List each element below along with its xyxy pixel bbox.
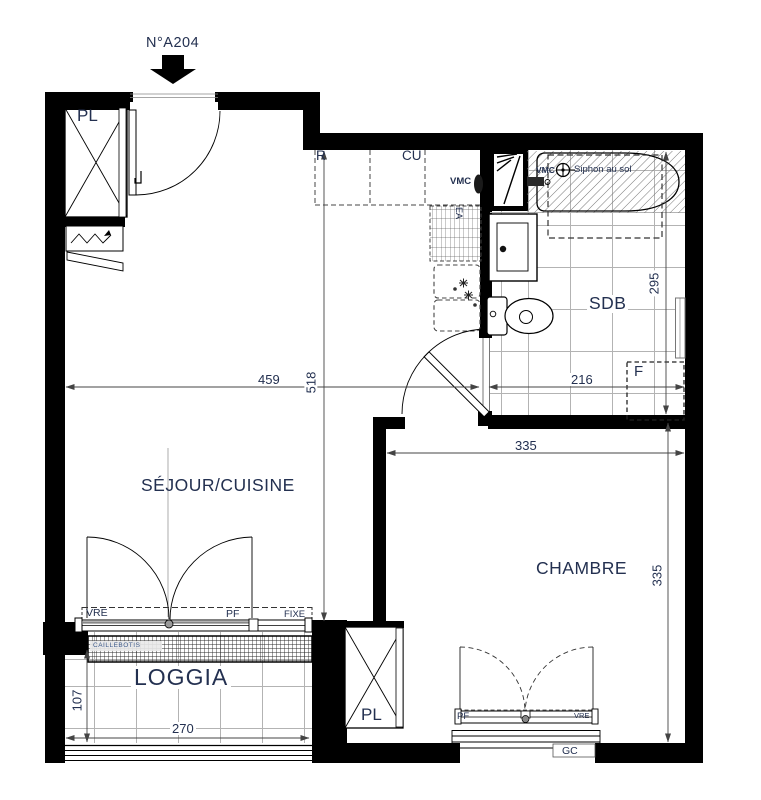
window-f-label: F — [634, 364, 643, 379]
entrance-arrow-icon — [150, 55, 196, 84]
toilet — [487, 297, 553, 335]
bathroom-door — [402, 329, 490, 417]
room-label-sdb: SDB — [587, 295, 628, 313]
siphon-label: Siphon au sol — [574, 165, 632, 175]
dim-loggia-width: 270 — [170, 722, 196, 735]
dim-chambre-width: 335 — [513, 439, 539, 452]
pf-chambre-label: PF — [457, 712, 469, 722]
vanity-unit — [489, 214, 537, 281]
vmc-vent-icon — [474, 175, 483, 194]
dim-sdb-length: 295 — [647, 271, 660, 297]
vre-chambre-label: VRE — [574, 712, 589, 720]
room-label-chambre: CHAMBRE — [536, 560, 627, 578]
entry-closet — [65, 108, 127, 271]
towel-radiator — [676, 298, 686, 358]
entry-door — [129, 94, 220, 195]
kitchen-sink — [434, 265, 480, 331]
faucet-icon — [459, 279, 473, 300]
fridge-label: R — [316, 149, 326, 163]
closet-label-chambre: PL — [360, 706, 383, 723]
grating-label: CAILLEBOTIS — [93, 643, 140, 650]
technical-duct — [489, 149, 528, 211]
vmc-kitchen-label: VMC — [450, 177, 471, 187]
guardrail-label: GC — [562, 746, 578, 757]
dim-chambre-length: 335 — [650, 563, 663, 589]
room-label-sejour: SÉJOUR/CUISINE — [141, 477, 295, 495]
dim-sejour-width: 459 — [256, 373, 282, 386]
floor-plan: N°A204 SÉJOUR/CUISINE CHAMBRE LOGGIA SDB… — [0, 0, 761, 800]
pf-sejour-label: PF — [226, 609, 239, 620]
fixe-sejour-label: FIXE — [284, 610, 305, 620]
dim-loggia-depth: 107 — [70, 688, 83, 714]
dim-sdb-width: 216 — [569, 373, 595, 386]
vmc-bath-label: VMC — [536, 166, 555, 175]
loggia-guardrail — [65, 746, 312, 761]
vre-sejour-label: VRE — [86, 608, 108, 619]
room-label-loggia: LOGGIA — [131, 666, 231, 689]
plan-linework — [0, 0, 761, 800]
closet-label-entry: PL — [77, 107, 98, 124]
sink-duct-label: EA — [454, 207, 463, 219]
unit-number: N°A204 — [146, 36, 199, 51]
chambre-window — [452, 647, 600, 757]
kitchen-unit-label: CU — [402, 149, 422, 163]
bath-faucet-icon — [527, 177, 544, 186]
dim-sejour-length: 518 — [304, 370, 317, 396]
